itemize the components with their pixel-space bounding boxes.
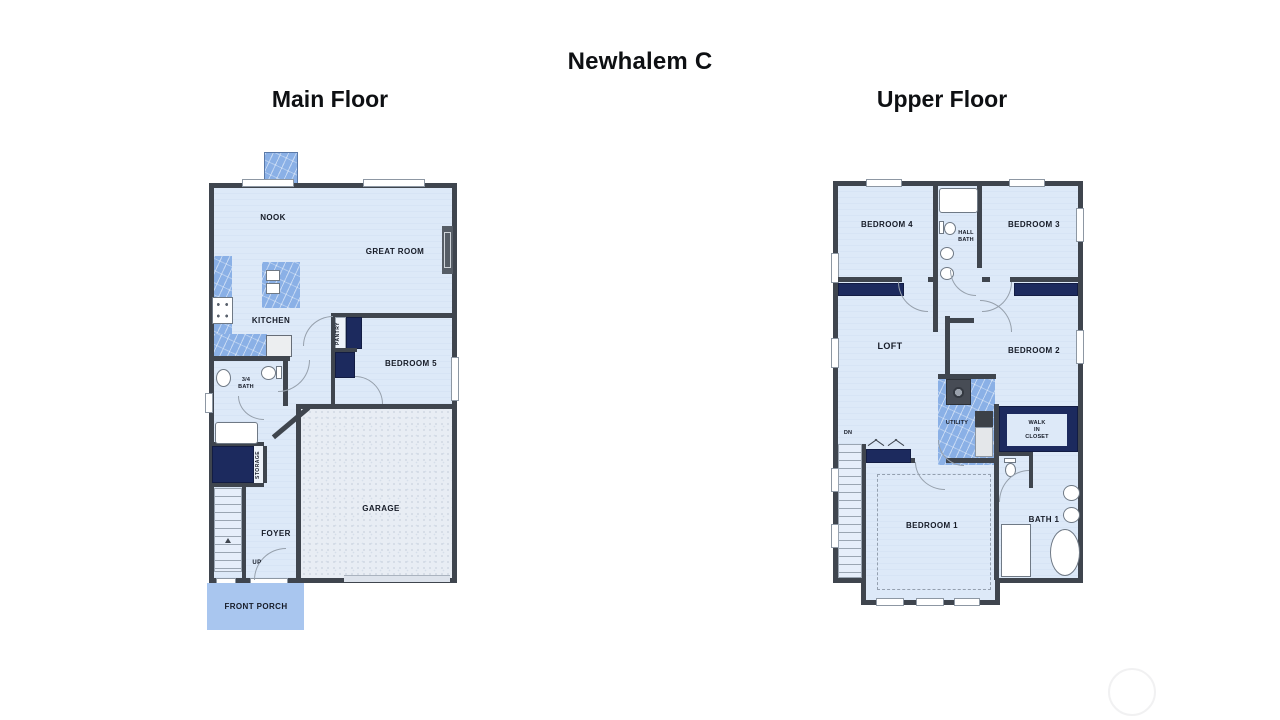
dryer-fixture [975,427,993,457]
window [242,179,294,187]
stove-fixture [212,297,233,324]
garage-door [344,575,450,582]
dryer-top-fixture [975,411,993,427]
window [876,598,904,606]
wall [1029,452,1033,488]
window [1076,330,1084,364]
wall [928,277,938,282]
wall [296,404,301,583]
room-label-foyer: FOYER [246,529,306,539]
fireplace-inner [444,232,451,268]
window [954,598,980,606]
window [831,338,839,368]
tub-fixture [215,422,258,444]
room-label-bedroom1: BEDROOM 1 [892,521,972,531]
room-label-bedroom2: BEDROOM 2 [994,346,1074,356]
island-sink-fixture [266,283,280,294]
window [916,598,944,606]
window [866,179,902,187]
staircase-up [214,488,242,572]
freestanding-tub-fixture [1050,529,1080,576]
wall [950,318,974,323]
window [205,393,213,413]
sink-fixture [1063,485,1080,501]
wall [994,460,999,580]
room-label-dn: DN [840,430,856,437]
closet-door-mark [868,437,884,447]
room-label-garage: GARAGE [341,504,421,514]
bedroom1-closet [866,449,911,463]
room-label-storage: STORAGE [255,449,262,481]
wall [838,277,902,282]
fridge-fixture [266,335,292,357]
room-label-front-porch: FRONT PORCH [206,602,306,612]
main-floor-heading: Main Floor [205,86,455,113]
garage-floor [301,409,452,578]
window [1009,179,1045,187]
room-label-bedroom5: BEDROOM 5 [371,359,451,369]
room-label-up: UP [247,560,267,568]
room-label-nook: NOOK [243,213,303,223]
wall [296,404,457,409]
room-label-34-bath: 3/4 BATH [226,377,266,391]
window [363,179,425,187]
closet-door-mark [888,437,904,447]
washer-fixture [946,379,971,405]
watermark-circle [1108,668,1156,716]
bedroom3-closet [1014,283,1078,296]
sink-fixture [940,247,954,260]
tub-fixture [939,188,978,213]
room-label-pantry: PANTRY [335,320,342,348]
bedroom5-closet [335,352,355,378]
pantry-shelf [346,317,362,349]
plan-title: Newhalem C [0,48,1280,76]
bedroom1-ceiling-detail [877,474,991,590]
wall [212,483,264,487]
floor-plan-sheet: Newhalem C Main Floor Upper Floor [0,0,1280,720]
kitchen-counter-bottom [214,334,267,357]
staircase-down [838,444,862,578]
room-label-great-room: GREAT ROOM [355,247,435,257]
room-label-walk-in-closet: WALK IN CLOSET [1007,420,1067,441]
room-label-bath1: BATH 1 [1014,515,1074,525]
window [1076,208,1084,242]
room-label-loft: LOFT [860,341,920,353]
room-label-bedroom4: BEDROOM 4 [847,220,927,230]
storage-closet [212,446,254,483]
stair-direction-arrow [225,538,231,543]
wall [933,186,938,332]
wall [1010,277,1083,282]
window [451,357,459,401]
room-label-kitchen: KITCHEN [236,316,306,326]
room-label-utility: UTILITY [937,420,977,427]
wall [999,452,1033,456]
room-label-hall-bath: HALL BATH [951,230,981,244]
bedroom4-closet [838,283,904,296]
room-label-bedroom3: BEDROOM 3 [994,220,1074,230]
wall [263,446,267,483]
shower-fixture [1001,524,1031,577]
island-sink-fixture [266,270,280,281]
upper-floor-heading: Upper Floor [817,86,1067,113]
